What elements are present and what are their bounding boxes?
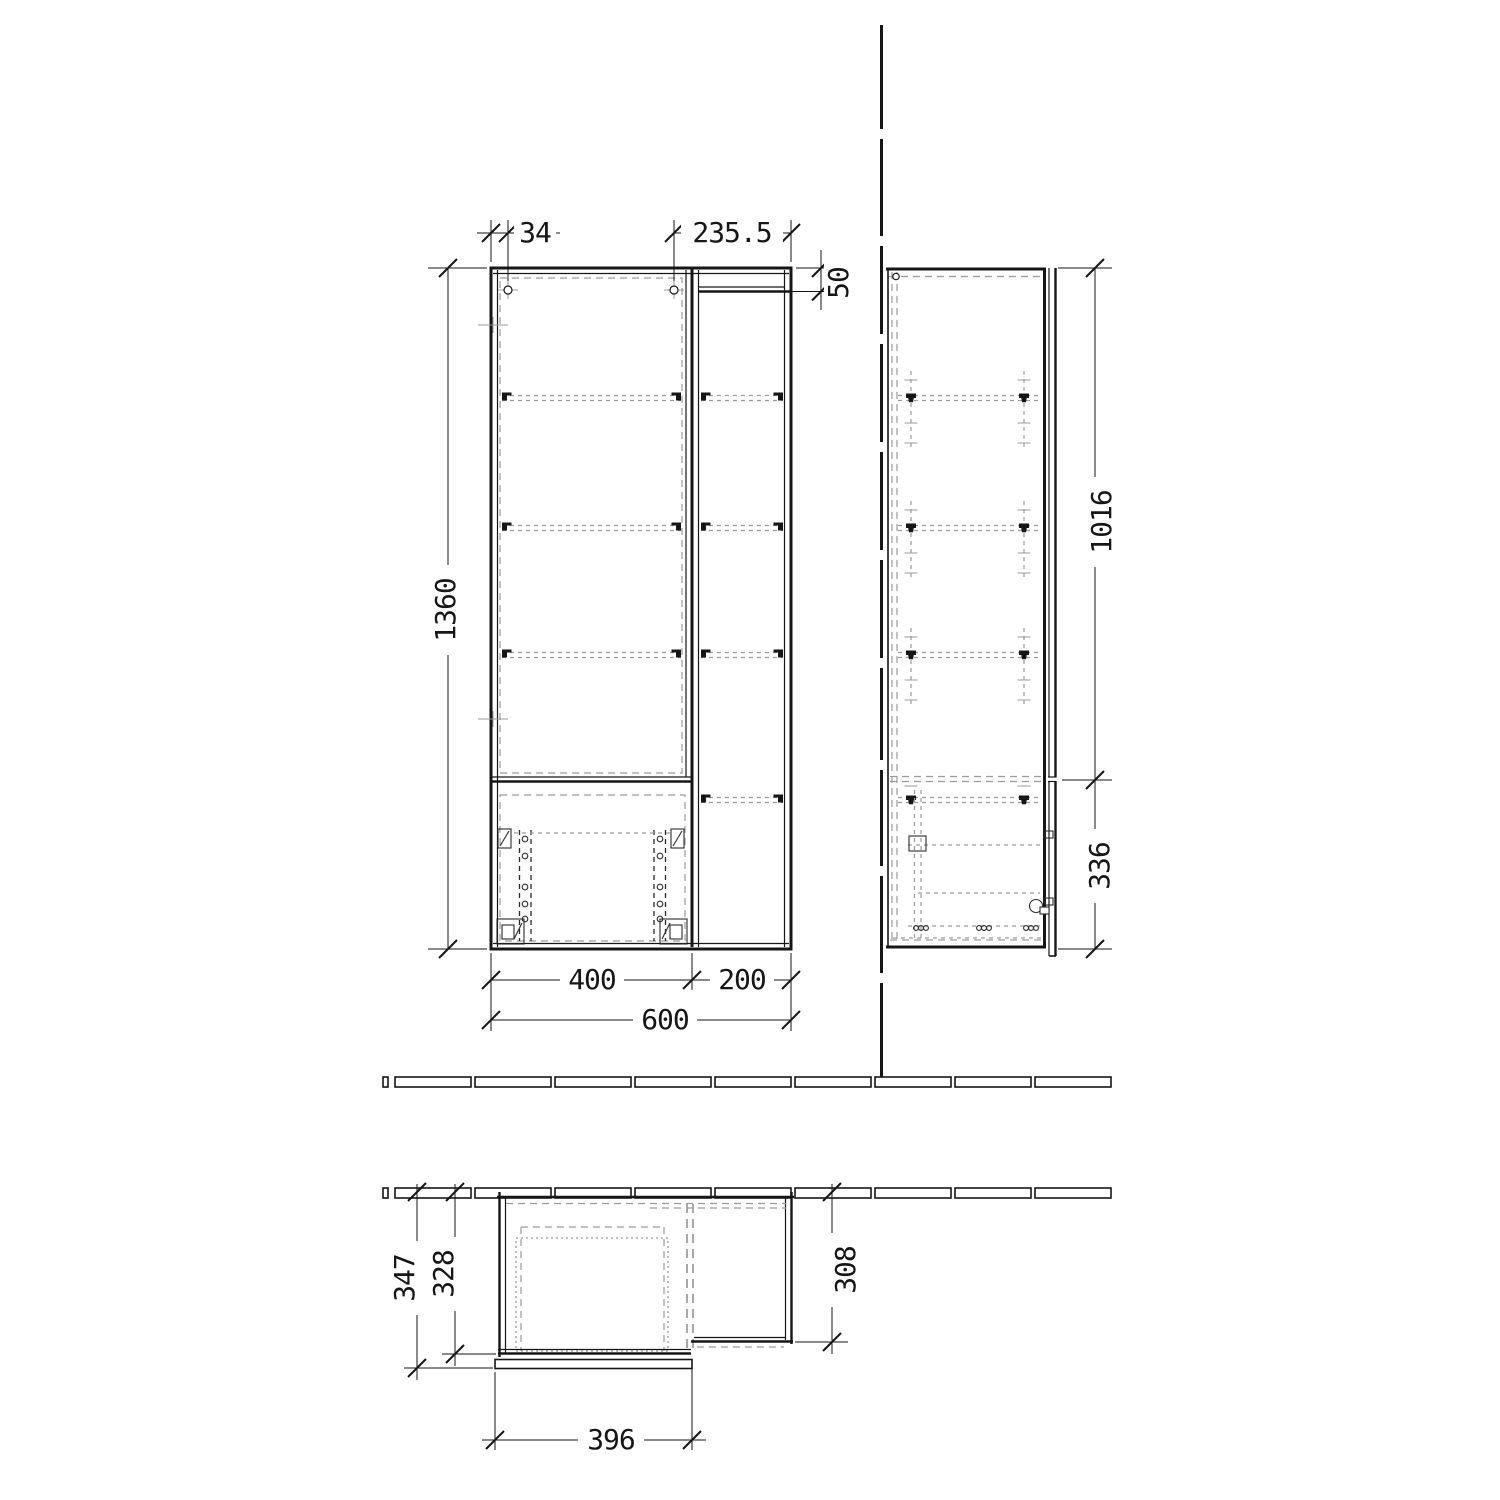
dim-label-side-lower: 336 <box>1083 842 1116 890</box>
dim-height-1360: 1360 <box>428 259 487 958</box>
dim-side-1016-336: 1016 336 <box>1058 259 1118 958</box>
dim-niche-top-50: 50 <box>796 250 855 310</box>
technical-drawing-page: 1360 34 235.5 50 <box>0 0 1500 1500</box>
dim-label-hinge-offset: 34 <box>519 216 551 249</box>
dim-plan-328: 328 <box>427 1183 496 1366</box>
dim-label-drawer-width: 396 <box>587 1423 635 1456</box>
dim-label-height: 1360 <box>429 578 462 642</box>
dim-label-niche-top: 50 <box>822 267 855 299</box>
drawer-plan-outline <box>516 1227 668 1351</box>
dim-label-door-width: 400 <box>568 963 616 996</box>
wall-plug-icon <box>893 273 899 279</box>
wall-tile-row-mid <box>383 1077 1111 1087</box>
dim-label-depth-front: 347 <box>388 1254 421 1302</box>
door-side-profile <box>1047 268 1058 956</box>
cabinet-technical-drawing: 1360 34 235.5 50 <box>0 0 1500 1500</box>
side-view <box>886 268 1058 956</box>
front-view <box>478 268 848 949</box>
dim-label-top-width: 235.5 <box>692 216 771 249</box>
dim-plan-396: 396 <box>482 1362 706 1456</box>
dim-label-total-width: 600 <box>641 1003 689 1036</box>
plan-view <box>495 1192 794 1369</box>
dim-label-depth-open: 308 <box>829 1246 862 1294</box>
carcass-outline <box>491 268 791 949</box>
dim-label-depth-carcass: 328 <box>427 1250 460 1298</box>
dim-plan-308: 308 <box>795 1183 862 1354</box>
dim-total-width-600: 600 <box>482 1003 800 1036</box>
dim-label-side-upper: 1016 <box>1085 490 1118 554</box>
catch-icon <box>1030 900 1050 915</box>
dim-label-niche-width: 200 <box>718 963 766 996</box>
drawer-front-panel <box>495 1360 692 1369</box>
